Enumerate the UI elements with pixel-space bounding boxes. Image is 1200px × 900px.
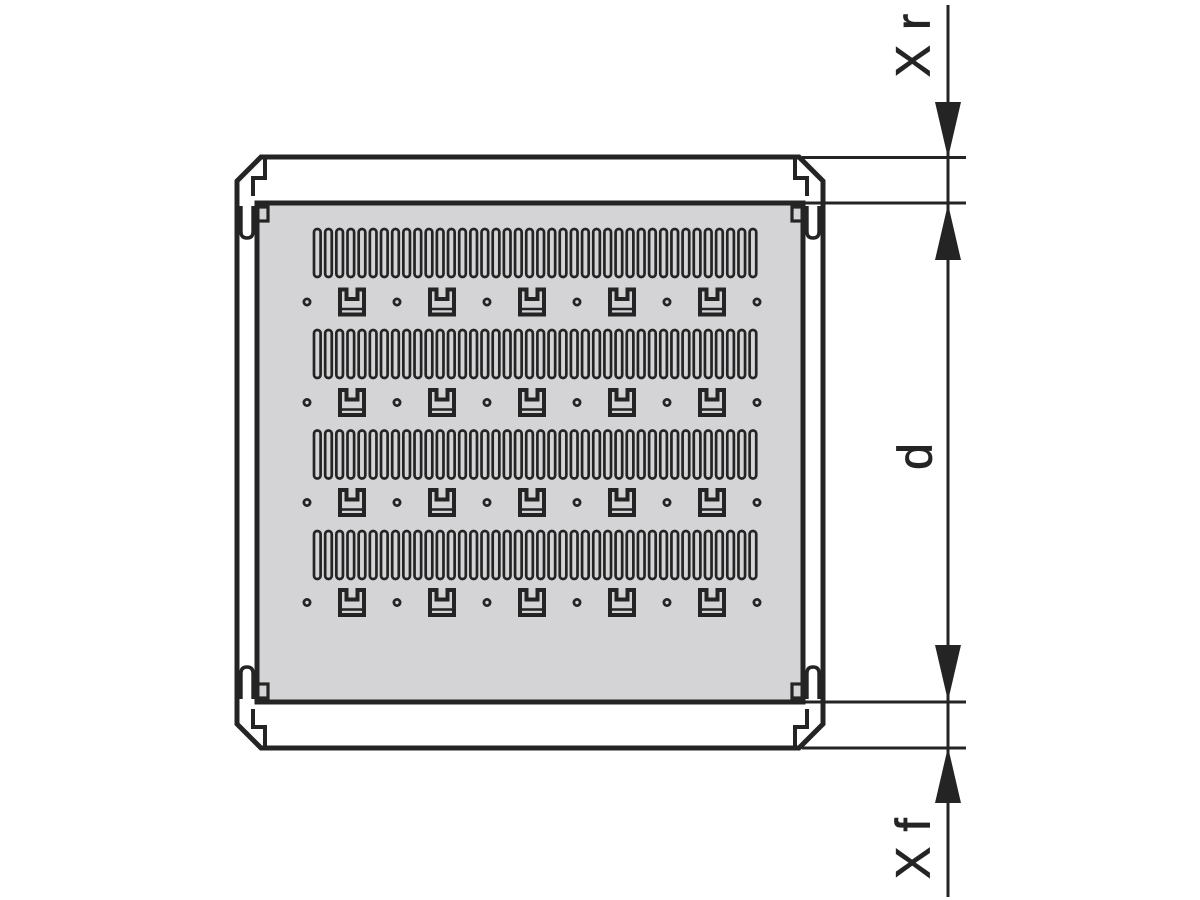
label-depth: d [890,442,943,470]
shelf-technical-drawing: X r d X f [0,0,1200,900]
arrow-xr-down [935,102,961,158]
label-rear-offset: X r [888,13,941,77]
arrow-d-down [935,645,961,701]
arrow-d-up [935,204,961,260]
arrow-xf-up [935,747,961,803]
dimension-annotations: X r d X f [802,5,966,897]
technical-drawing-page: X r d X f [0,0,1200,900]
label-front-offset: X f [888,817,941,879]
